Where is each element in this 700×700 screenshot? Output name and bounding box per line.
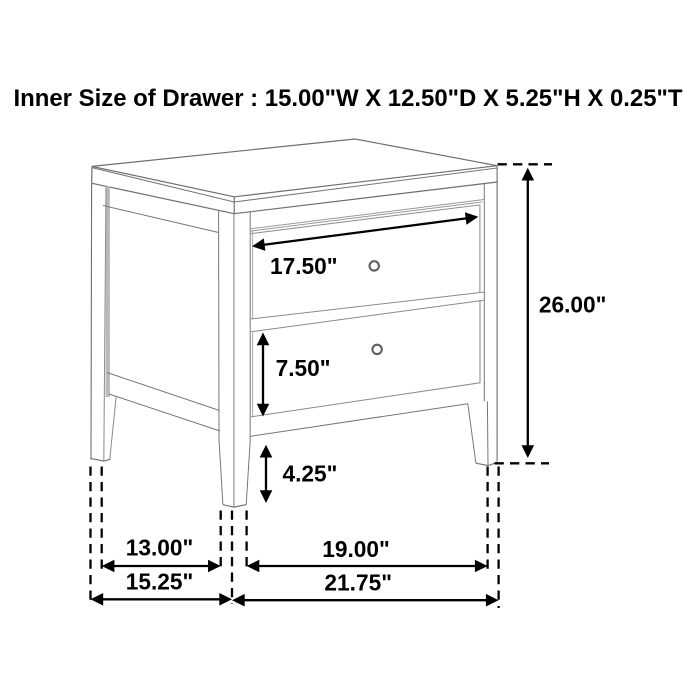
svg-text:21.75": 21.75" bbox=[324, 569, 392, 595]
svg-text:7.50": 7.50" bbox=[276, 355, 331, 381]
svg-text:26.00": 26.00" bbox=[539, 291, 607, 317]
svg-text:15.25": 15.25" bbox=[126, 569, 194, 595]
svg-text:19.00": 19.00" bbox=[322, 536, 390, 562]
svg-text:Inner Size of Drawer : 15.00"W: Inner Size of Drawer : 15.00"W X 12.50"D… bbox=[14, 85, 683, 112]
svg-text:17.50": 17.50" bbox=[270, 253, 338, 279]
svg-text:4.25": 4.25" bbox=[283, 461, 338, 487]
svg-text:13.00": 13.00" bbox=[126, 535, 194, 561]
